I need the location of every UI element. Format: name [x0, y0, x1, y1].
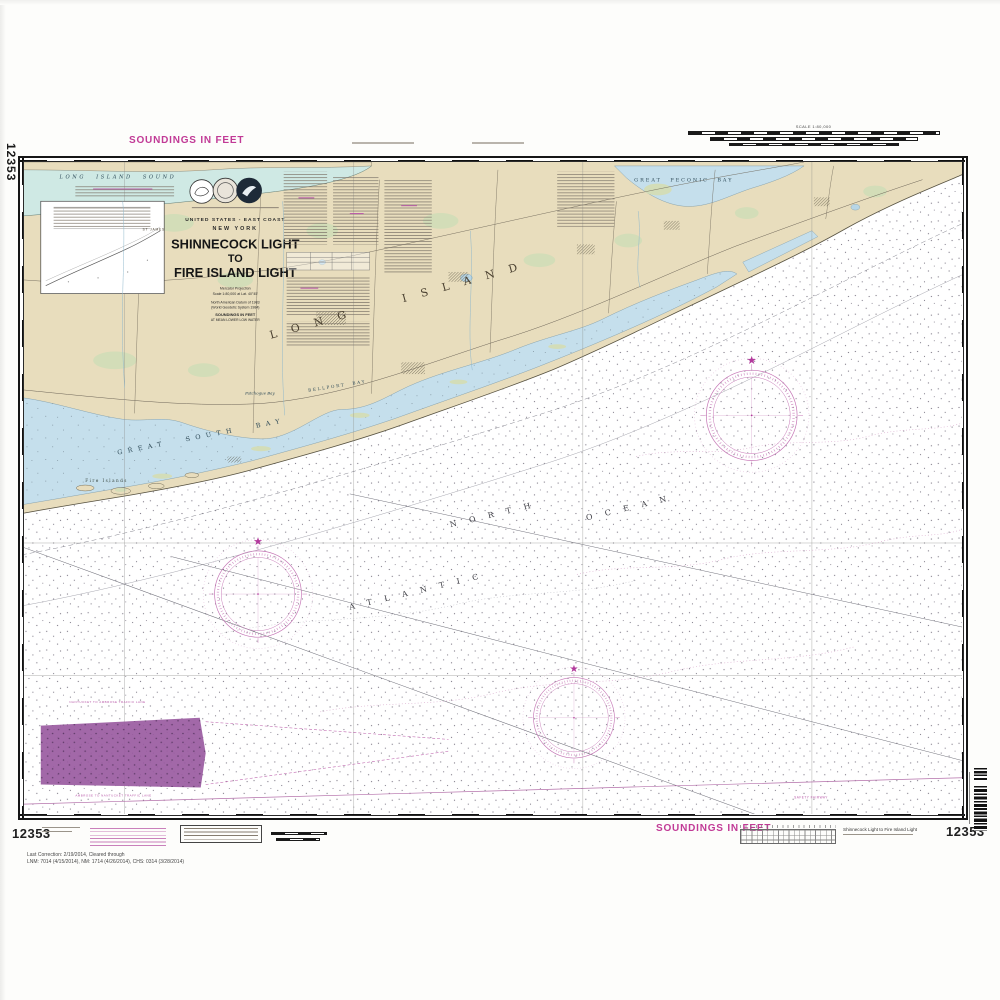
conversion-table-numbers — [740, 825, 836, 828]
micro-text-top-2 — [472, 142, 524, 144]
st-james-label: ST JAMES — [142, 228, 165, 232]
bottom-chart-title-text: Shinnecock Light to Fire Island Light — [843, 827, 917, 832]
scale-note: Scale 1:80,000 at Lat. 40°45' — [213, 292, 259, 296]
barcode-upper — [974, 768, 987, 781]
chart-sheet: NANTUCKET TO AMBROSE TRAFFIC LANE AMBROS… — [18, 156, 968, 820]
long-island-sound-label: LONG ISLAND SOUND — [59, 175, 177, 181]
correction-line-2: LNM: 7014 (4/15/2014), NM: 1714 (4/26/20… — [27, 859, 184, 866]
region-label: UNITED STATES - EAST COAST — [185, 217, 285, 223]
scale-bar-1 — [688, 131, 940, 135]
micro-text-top-1 — [352, 142, 414, 144]
projection-label: Mercator Projection — [220, 287, 251, 291]
chart-title-line1: SHINNECOCK LIGHT — [171, 236, 300, 251]
traffic-lane-label-south: AMBROSE TO NANTUCKET TRAFFIC LANE — [75, 793, 151, 797]
scale-label: SCALE 1:80,000 — [686, 124, 941, 129]
soundings-in-feet-top-label: SOUNDINGS IN FEET — [129, 135, 244, 146]
border-graduation-right — [962, 158, 964, 818]
boxed-note — [180, 825, 262, 843]
chart-map: NANTUCKET TO AMBROSE TRAFFIC LANE AMBROS… — [24, 162, 962, 814]
barcode-micro-text — [969, 772, 970, 824]
bottom-chart-subtitle-bar — [843, 834, 913, 835]
chart-title-line2: TO — [228, 253, 243, 265]
datum-note: North American Datum of 1983 — [211, 300, 260, 304]
barcode-lower — [974, 786, 987, 831]
scale-bar-2 — [710, 137, 918, 141]
chart-number-bottom-left: 12353 — [12, 826, 51, 841]
inset-map-panel — [41, 201, 164, 293]
scale-bar-3 — [729, 143, 899, 147]
soundings-note-2: AT MEAN LOWER LOW WATER — [211, 318, 260, 322]
top-scale-bars: SCALE 1:80,000 — [686, 124, 941, 154]
caution-note-magenta — [90, 828, 166, 848]
chart-number-top-left: 12353 — [4, 143, 18, 181]
bottom-left-scale-bars — [271, 829, 325, 841]
border-graduation-bottom — [20, 814, 966, 816]
feet-fathoms-conversion-table — [740, 829, 836, 844]
patchogue-bay-label: Patchogue Bay — [244, 391, 275, 396]
safety-fairway-label: SAFETY FAIRWAY — [794, 795, 828, 799]
edition-micro-note-2 — [42, 831, 72, 832]
fire-islands-label: Fire Islands — [85, 478, 128, 483]
seal-logo — [213, 178, 238, 203]
edition-micro-note-1 — [42, 827, 80, 828]
bottom-chart-title: Shinnecock Light to Fire Island Light — [843, 827, 963, 835]
photo-edge-top — [0, 0, 1000, 5]
correction-note: Last Correction: 2/19/2014, Cleared thro… — [27, 852, 184, 865]
sound-note-block — [75, 186, 174, 199]
datum-note-2: (World Geodetic System 1984) — [211, 305, 259, 309]
state-label: NEW YORK — [213, 226, 259, 232]
chart-title-line3: FIRE ISLAND LIGHT — [174, 265, 297, 280]
agency-caption-bar — [192, 207, 279, 208]
chart-product-photo: SOUNDINGS IN FEET 12353 SCALE 1:80,000 — [0, 0, 1000, 1000]
great-peconic-bay-label: GREAT PECONIC BAY — [634, 178, 733, 184]
traffic-lane-label-north: NANTUCKET TO AMBROSE TRAFFIC LANE — [69, 700, 145, 704]
soundings-note: SOUNDINGS IN FEET — [215, 312, 256, 317]
